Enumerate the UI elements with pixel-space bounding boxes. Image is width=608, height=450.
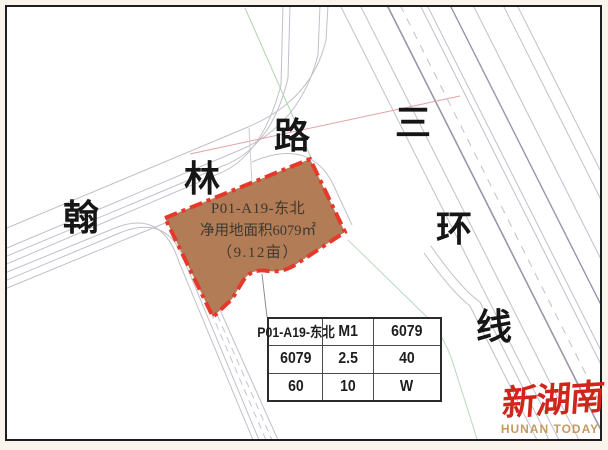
table-row: P01-A19-东北 M1 6079	[269, 319, 440, 345]
sanhuan-road-char-3: 线	[476, 309, 512, 345]
parcel-code: P01-A19-东北	[166, 199, 350, 220]
planning-map-canvas: 翰 林 路 三 环 线 P01-A19-东北 净用地面积6079㎡ （9.12亩…	[0, 0, 608, 450]
hunan-today-logo-cn: 新湖南	[501, 379, 605, 421]
table-cell: 2.5	[322, 346, 373, 372]
parcel-label: P01-A19-东北 净用地面积6079㎡ （9.12亩）	[166, 199, 350, 264]
hunan-today-logo-en: HUNAN TODAY	[497, 423, 603, 435]
table-cell: P01-A19-东北	[269, 319, 322, 345]
parcel-area: 净用地面积6079㎡	[166, 220, 350, 242]
table-cell: 6079	[373, 319, 440, 345]
table-cell: W	[373, 374, 440, 400]
table-cell: 40	[373, 346, 440, 372]
table-cell: 60	[269, 374, 322, 400]
table-row: 60 10 W	[269, 373, 440, 400]
table-row: 6079 2.5 40	[269, 345, 440, 372]
sanhuan-road-char-2: 环	[436, 211, 472, 247]
hanlin-road-char-3: 路	[274, 118, 310, 154]
table-cell: 6079	[269, 346, 322, 372]
table-cell: 10	[322, 374, 373, 400]
hanlin-road-char-1: 翰	[63, 200, 99, 236]
hanlin-road-char-2: 林	[184, 161, 220, 197]
parcel-data-table: P01-A19-东北 M1 6079 6079 2.5 40 60 10 W	[267, 317, 442, 402]
sanhuan-road-char-1: 三	[395, 105, 431, 141]
parcel-area-mu: （9.12亩）	[166, 242, 350, 264]
